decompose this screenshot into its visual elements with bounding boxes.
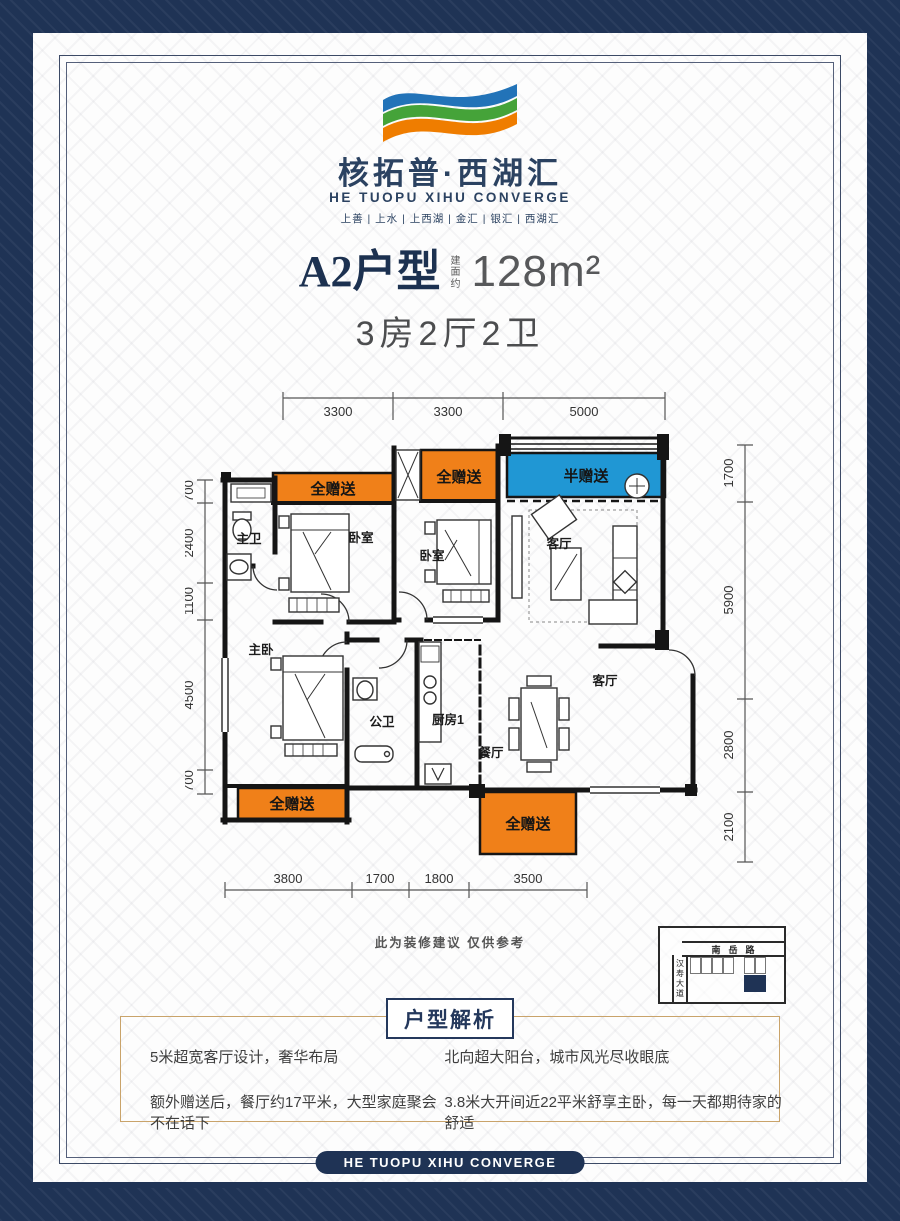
brand-name-en: HE TUOPU XIHU CONVERGE (0, 190, 900, 205)
room-label-public-bath: 公卫 (369, 715, 395, 729)
dim-right-2: 5900 (721, 586, 736, 615)
brand-sub-brands: 上善 | 上水 | 上西湖 | 金汇 | 银汇 | 西湖汇 (0, 211, 900, 226)
map-building-block (712, 957, 723, 974)
analysis-point: 额外赠送后，餐厅约17平米，大型家庭聚会不在话下 (150, 1091, 444, 1133)
map-road-hanshou: 汉寿大道 (672, 955, 688, 1002)
zone-label-half-gift: 半赠送 (563, 467, 609, 485)
zone-label-full-gift-3: 全赠送 (268, 795, 315, 813)
room-label-bedroom1: 卧室 (348, 530, 374, 545)
floor-plan: 全赠送 全赠送 半赠送 全赠送 全赠送 主卫 卧室 卧室 客厅 主卧 公卫 厨房… (185, 390, 775, 915)
bed-icon-bedroom1 (279, 514, 349, 612)
dim-right-1: 1700 (721, 459, 736, 488)
map-building-block (723, 957, 734, 974)
room-label-living2: 客厅 (591, 673, 618, 688)
bed-icon-master (271, 656, 343, 756)
analysis-point: 5米超宽客厅设计，奢华布局 (150, 1046, 444, 1067)
unit-name: A2户型 (299, 250, 441, 294)
dim-right-4: 2100 (721, 813, 736, 842)
zone-label-full-gift-2: 全赠送 (435, 468, 482, 486)
brand-logo (375, 84, 525, 146)
room-label-living1: 客厅 (545, 536, 572, 551)
room-label-dining: 餐厅 (477, 745, 504, 760)
dim-bottom-2: 1700 (366, 871, 395, 886)
dim-top-2: 3300 (434, 404, 463, 419)
analysis-header: 户型解析 (386, 998, 514, 1039)
dim-top-1: 3300 (324, 404, 353, 419)
dim-bottom-3: 1800 (425, 871, 454, 886)
map-building-block (755, 957, 766, 974)
analysis-point: 北向超大阳台，城市风光尽收眼底 (444, 1046, 790, 1067)
area-prefix: 建面约 (451, 256, 464, 291)
room-label-master-bedroom: 主卧 (248, 642, 274, 657)
zone-label-full-gift-4: 全赠送 (504, 815, 551, 833)
dim-left-2: 2400 (185, 529, 196, 558)
map-building-block (744, 957, 755, 974)
dim-bottom-4: 3500 (514, 871, 543, 886)
map-road-nanyue: 南岳路 (682, 941, 784, 957)
map-project-block (744, 975, 755, 992)
analysis-point: 3.8米大开间近22平米舒享主卧，每一天都期待家的舒适 (444, 1091, 790, 1133)
unit-title-row: A2户型 建面约 128m² (0, 250, 900, 294)
unit-area: 128m² (472, 250, 602, 294)
map-building-block (690, 957, 701, 974)
analysis-points: 5米超宽客厅设计，奢华布局 北向超大阳台，城市风光尽收眼底 额外赠送后，餐厅约1… (150, 1046, 790, 1133)
room-label-bedroom2: 卧室 (419, 548, 445, 563)
location-map: 南岳路 汉寿大道 (658, 926, 786, 1004)
dim-left-5: 700 (185, 770, 196, 792)
footer-band (33, 1182, 867, 1188)
dim-bottom-1: 3800 (274, 871, 303, 886)
poster: 核拓普·西湖汇 HE TUOPU XIHU CONVERGE 上善 | 上水 |… (0, 0, 900, 1221)
dim-left-4: 4500 (185, 681, 196, 710)
dim-right-3: 2800 (721, 731, 736, 760)
map-project-block (755, 975, 766, 992)
closet-icon (396, 450, 420, 500)
dining-table-icon (509, 676, 569, 772)
room-label-kitchen: 厨房1 (432, 712, 464, 727)
brand-name-cn: 核拓普·西湖汇 (0, 148, 900, 193)
dim-left-3: 1100 (185, 587, 196, 615)
map-building-block (701, 957, 712, 974)
dim-left-1: 700 (185, 480, 196, 502)
unit-layout: 3房2厅2卫 (0, 306, 900, 355)
zone-label-full-gift-1: 全赠送 (309, 480, 356, 498)
room-label-master-bath: 主卫 (236, 531, 262, 546)
furniture (227, 474, 649, 784)
dim-top-3: 5000 (570, 404, 599, 419)
footer-badge: HE TUOPU XIHU CONVERGE (316, 1151, 585, 1174)
